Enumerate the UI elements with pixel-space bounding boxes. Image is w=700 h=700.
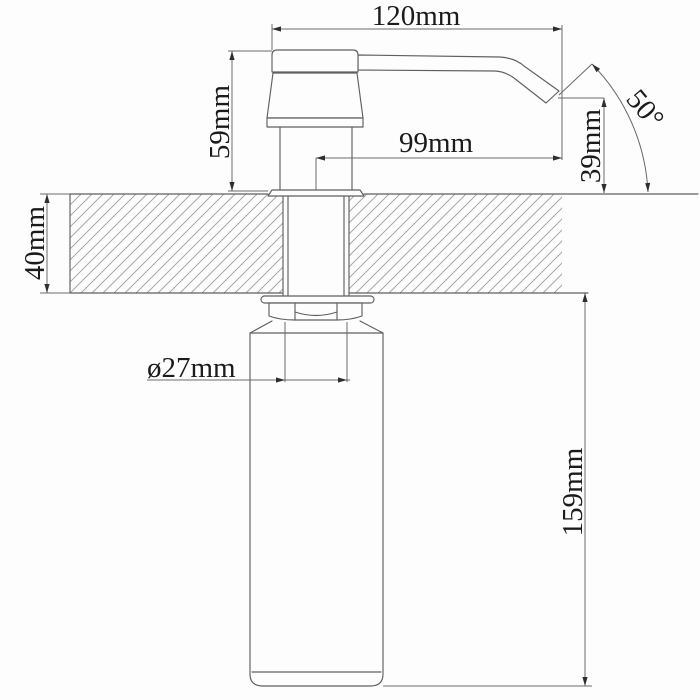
dispenser-drawing-canvas: 120mm 59mm 99mm 39mm 50° 40mm xyxy=(0,0,700,700)
dimension-label-spout-reach: 99mm xyxy=(399,127,474,159)
dim-under-counter-length: 159mm xyxy=(383,293,592,686)
counter-hatch-right xyxy=(349,194,562,293)
arrowhead xyxy=(276,377,285,382)
arrowhead xyxy=(601,98,606,107)
dimension-label-tip-to-counter: 39mm xyxy=(575,109,607,184)
funnel-adapter xyxy=(250,321,383,333)
bottle xyxy=(250,333,383,686)
counter-hatch-left xyxy=(70,194,283,293)
arrowhead xyxy=(582,677,587,686)
arrowhead xyxy=(229,51,234,60)
washer xyxy=(261,296,374,303)
spout xyxy=(358,55,559,103)
pump-cap xyxy=(272,50,358,72)
technical-drawing-page: 120mm 59mm 99mm 39mm 50° 40mm xyxy=(0,0,700,700)
dim-shank-diameter: ø27mm xyxy=(147,322,350,384)
arrowhead xyxy=(272,26,281,31)
arrowhead xyxy=(229,182,234,191)
arrowhead xyxy=(338,377,347,382)
arrowhead xyxy=(44,284,49,293)
dimension-label-counter-thickness: 40mm xyxy=(19,206,51,281)
dimension-label-spout-angle: 50° xyxy=(620,83,671,135)
arrowhead xyxy=(645,183,650,192)
hex-nut xyxy=(269,303,362,320)
threaded-shank xyxy=(283,196,349,296)
dim-counter-thickness: 40mm xyxy=(19,194,70,293)
countertop xyxy=(70,194,698,293)
dimension-label-shank-diameter: ø27mm xyxy=(147,352,236,384)
pump-head-body xyxy=(267,73,363,118)
arrowhead xyxy=(582,293,587,302)
dim-tip-to-counter: 39mm xyxy=(558,98,607,193)
dimension-label-head-height: 59mm xyxy=(204,85,236,160)
arrowhead xyxy=(316,155,325,160)
arrowhead xyxy=(44,194,49,203)
arrowhead xyxy=(553,26,562,31)
dim-spout-reach: 99mm xyxy=(316,127,562,190)
dim-head-height: 59mm xyxy=(204,51,272,191)
dimension-label-under-counter-length: 159mm xyxy=(557,447,589,536)
mounting-flange xyxy=(268,190,364,196)
arrowhead xyxy=(601,184,606,193)
dimension-label-overall-reach: 120mm xyxy=(372,0,461,32)
pump-head-base-band xyxy=(267,118,363,127)
arrowhead xyxy=(553,155,562,160)
